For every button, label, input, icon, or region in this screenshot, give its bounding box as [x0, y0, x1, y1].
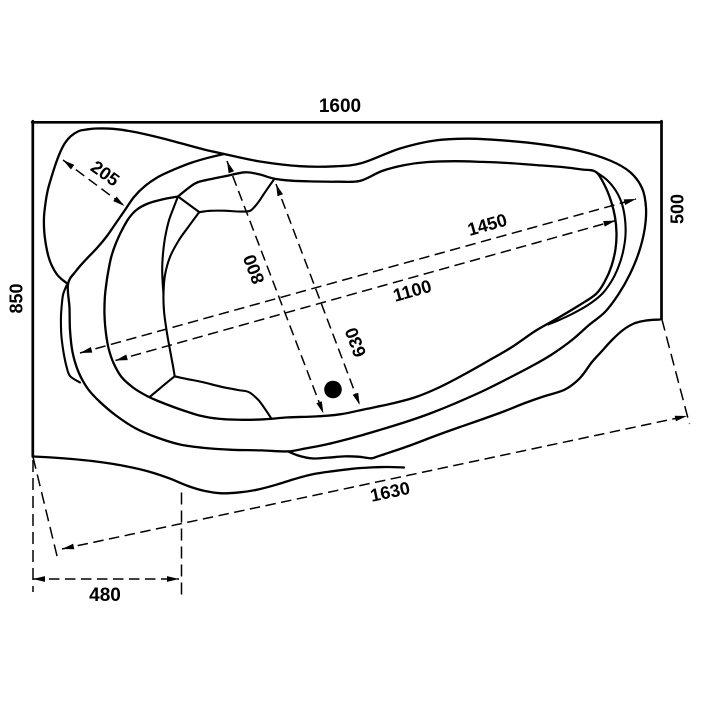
- svg-text:1600: 1600: [319, 96, 361, 117]
- svg-text:500: 500: [667, 194, 687, 224]
- svg-text:850: 850: [6, 283, 26, 313]
- svg-text:480: 480: [89, 585, 121, 606]
